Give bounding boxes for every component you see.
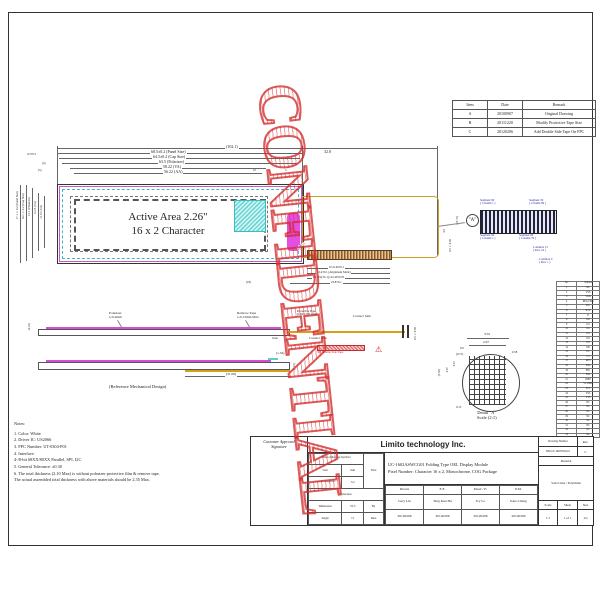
fpc-dim-right: 4.5 <box>443 228 446 234</box>
revision-date: 20120206 <box>488 128 523 137</box>
active-area-text: Active Area 2.26" 16 x 2 Character <box>80 210 256 239</box>
sheet-value: 1 of 1 <box>558 510 578 525</box>
active-area-format: 16 x 2 Character <box>80 224 256 238</box>
drawing-number-value: DM-UC1602SWG01 <box>539 447 578 456</box>
segment-label: ( Column 1 ) <box>480 237 495 240</box>
dim-misc: 0.5±0.5 <box>26 153 37 156</box>
note-line: 4. Interface: <box>14 451 160 458</box>
revision-header-cell: Remark <box>523 101 596 110</box>
notes-section: Notes: 1. Color: White2. Driver IC: US20… <box>14 421 160 484</box>
common-label: ( Row 16 ) <box>533 249 548 252</box>
size-value: A3 <box>578 510 593 525</box>
detail-dim: (5.55) <box>438 368 441 377</box>
contact-side-label: Contact Side <box>352 315 372 319</box>
active-area-size: Active Area 2.26" <box>80 210 256 224</box>
dim-left-cap: 16.1±0.2 (Cap Size) <box>22 192 25 221</box>
dim-3108: (31.08) <box>225 373 237 377</box>
angle-label: Angle <box>309 512 342 524</box>
dim-overall: (102.1) <box>225 145 239 149</box>
detail-dim: 0.13 <box>455 406 462 409</box>
detail-dim: 0.58 <box>511 351 518 354</box>
date-label: Date <box>364 512 384 524</box>
revision-table: ItemDateRemark A 20100907 Original Drawi… <box>452 100 596 137</box>
dim-fpc-length: 32.8 <box>323 150 332 154</box>
dim-left-aa: 11.15 (AA) <box>40 204 43 220</box>
dim-left-panel: 17.1±0.2 (Panel Size) <box>16 190 19 220</box>
glass-pad-strip <box>480 210 557 234</box>
note-line: 4-/8-bit 68XX/80XX Parallel, SPI, I2C <box>14 457 160 464</box>
note-line: The actual assembled total thickness wit… <box>14 477 160 484</box>
drawing-number-label: Drawing Number <box>539 437 578 446</box>
signoff-role: P.M. <box>500 486 538 495</box>
segment-label: ( Column 79 ) <box>519 237 536 240</box>
dim-line <box>467 338 509 339</box>
notes-list: 1. Color: White2. Driver IC: US20663. FP… <box>14 431 160 484</box>
glass-body <box>38 329 290 336</box>
sheet-label: Sheet <box>558 501 578 509</box>
detail-dim: (0.57) <box>455 353 464 356</box>
signoff-name: Ting Kun Hu <box>424 495 462 509</box>
title-block-right: Drawing Number Rev. DM-UC1602SWG01 C Mat… <box>539 437 593 525</box>
segment-label: ( Column 1 ) <box>480 202 495 205</box>
note-line: 6. The total thickness (2.10 Max) is wit… <box>14 471 160 478</box>
signoff-date: 20120206 <box>386 509 424 524</box>
dim-18: (18) <box>245 281 252 284</box>
segment-label: ( Column 99 ) <box>529 202 546 205</box>
dim-line <box>44 196 45 248</box>
signoff-role: E.E. <box>424 486 462 495</box>
signoff-dates-row: 20120206201202062012020620120206 <box>386 509 538 524</box>
dim-left-va: 13.15 (VA) <box>34 200 37 215</box>
notes-title: Notes: <box>14 421 160 428</box>
material-value: Soda Lime / Polyimide <box>539 466 593 500</box>
signoff-role: Drawn <box>386 486 424 495</box>
title-label: Title <box>364 454 384 489</box>
dim-line <box>38 193 39 251</box>
detail-dim: 0.67 <box>453 360 456 367</box>
size-label: Size <box>578 501 593 509</box>
pin-body: 1 NC 2 VSS 3 VDD 4 REGVDD <box>557 286 600 438</box>
detail-a-balloon: "A" <box>466 214 479 227</box>
revision-header-cell: Date <box>488 101 523 110</box>
dim-aa: 56.22 (AA) <box>163 170 183 174</box>
remove-tape-thickness: t=0.15mm Max <box>237 316 259 320</box>
signoff-header-row: DrawnE.E.Panel / E.P.M. <box>386 486 538 495</box>
detail-circle <box>462 354 520 412</box>
fpc-dim-right: 0.5±0.05 <box>449 238 452 253</box>
detail-dim: 2.97 <box>482 341 490 345</box>
dim-misc: (4) <box>41 162 47 165</box>
table-row: C 20120206 Add Double Side Tape On FPC <box>453 128 596 137</box>
revision-item: A <box>453 110 488 119</box>
rev-value: C <box>578 447 593 456</box>
rev-label: Rev. <box>578 437 593 446</box>
glass-body <box>38 362 290 370</box>
note-line: 3. FPC Number: UT-0304-P01 <box>14 444 160 451</box>
dim-line <box>469 345 506 346</box>
signoff-date: 20120206 <box>500 509 538 524</box>
table-row: B 20111220 Modify Protective Tape Size <box>453 119 596 128</box>
revision-item: C <box>453 128 488 137</box>
connector-pin <box>402 325 404 338</box>
thickness-dim: (2.10) <box>28 322 31 331</box>
revision-remark: Add Double Side Tape On FPC <box>523 128 596 137</box>
revision-date: 20100907 <box>488 110 523 119</box>
signoff-role: Panel / E. <box>462 486 500 495</box>
revision-body: A 20100907 Original Drawing B 20111220 M… <box>453 110 596 137</box>
note-line: 5. General Tolerance: ±0.30 <box>14 464 160 471</box>
angle-value: ±1 <box>342 512 364 524</box>
title-area: UC-1602ASWCG01 Folding Type OEL Display … <box>384 453 538 525</box>
polarizer-thickness: t=0.2mm <box>109 316 122 320</box>
dim-misc: (5) <box>37 169 43 172</box>
detail-dim: 0.6 <box>459 347 465 350</box>
engineering-drawing-sheet: CONFIDENTIAL ItemDateRemark A 20100907 O… <box>0 0 600 600</box>
revision-header-cell: Item <box>453 101 488 110</box>
fpc-thickness-dim: 0.5±0.05 <box>414 326 417 341</box>
common-label: ( Row 1 ) <box>539 261 552 264</box>
signoff-date: 20120206 <box>424 509 462 524</box>
material-label: Material <box>539 457 593 465</box>
table-row: A 20100907 Original Drawing <box>453 110 596 119</box>
revision-date: 20111220 <box>488 119 523 128</box>
detail-dim: 4.87 <box>446 366 449 373</box>
drawing-title-line2: Pixel Number: Character 16 x 2, Monochro… <box>388 469 538 475</box>
detail-dim: 3.55 <box>483 333 491 337</box>
scale-value: 1:1 <box>539 510 558 525</box>
note-line: 2. Driver IC: US2066 <box>14 437 160 444</box>
by-label: By <box>364 500 384 512</box>
signoff-name: Kate Chang <box>500 495 538 509</box>
dim-line <box>32 188 33 258</box>
revision-remark: Modify Protective Tape Size <box>523 119 596 128</box>
scale-label: Scale <box>539 501 558 509</box>
reference-caption: (Reference Mechanical Design) <box>108 385 167 390</box>
connector-pin <box>407 325 409 338</box>
signoff-name: Gary Lin <box>386 495 424 509</box>
note-line: 1. Color: White <box>14 431 160 438</box>
revision-remark: Original Drawing <box>523 110 596 119</box>
warning-icon: ⚠ <box>375 346 382 354</box>
pin-table: No.Symbol 1 NC 2 VSS 3 VDD <box>556 281 600 438</box>
ext-line <box>57 146 58 184</box>
dim-line <box>57 148 437 149</box>
signoff-date: 20120206 <box>462 509 500 524</box>
revision-header-row: ItemDateRemark <box>453 101 596 110</box>
detail-scale: Scale (2:1) <box>477 416 497 421</box>
dim-left-polarizer: 15.1 (Polarizer) <box>28 196 31 217</box>
signoff-names-row: Gary LinTing Kun HuIvy LoKate Chang <box>386 495 538 509</box>
signoff-name: Ivy Lo <box>462 495 500 509</box>
revision-item: B <box>453 119 488 128</box>
